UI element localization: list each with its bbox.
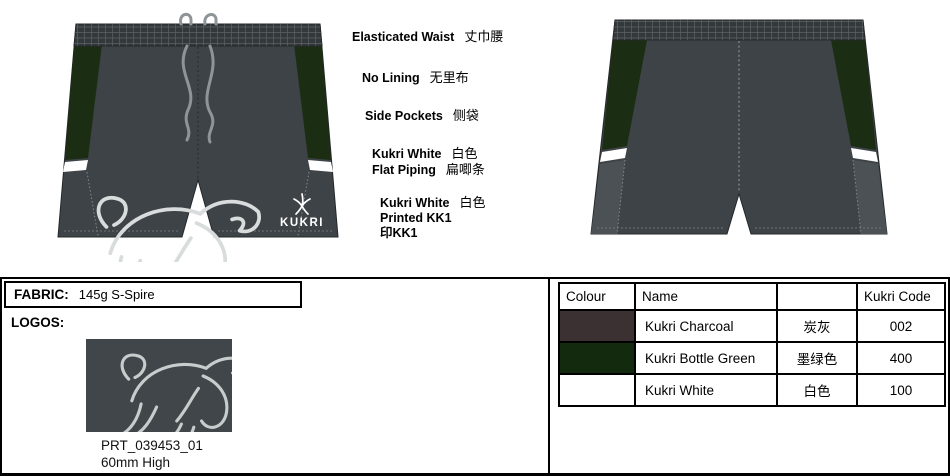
annotation-flat-piping: Kukri White白色 Flat Piping扁唧条 [372,146,485,178]
header-colour: Colour [559,283,635,310]
annotation-zh: 无里布 [430,70,469,85]
annotation-en: Kukri White [372,147,441,161]
colour-name-zh: 墨绿色 [777,342,857,374]
colour-table: Colour Name Kukri Code Kukri Charcoal 炭灰… [558,282,946,407]
section-divider [548,279,550,473]
colour-name: Kukri Charcoal [635,310,777,342]
colour-code: 002 [857,310,945,342]
annotation-en: Flat Piping [372,163,436,177]
logo-preview [86,339,232,432]
spec-sheet: KUKRI Elasticated Waist丈巾腰 No Lining无里布 … [0,0,950,476]
front-waistband-stitch [74,24,322,46]
back-shorts-drawing [589,10,889,260]
annotation-zh: 白色 [451,146,477,161]
fabric-label: FABRIC: [14,287,69,302]
annotation-printed-kk1: Kukri White白色 Printed KK1 印KK1 [380,195,485,241]
table-row: Kukri White 白色 100 [559,374,945,406]
swatch-charcoal [559,310,635,342]
swatch-bottle-green [559,342,635,374]
annotation-en: Side Pockets [365,109,443,123]
annotation-elasticated-waist: Elasticated Waist丈巾腰 [352,26,503,45]
colour-name-zh: 白色 [777,374,857,406]
annotation-zh: 丈巾腰 [464,29,503,44]
annotation-en: No Lining [362,71,420,85]
annotation-zh: 白色 [459,195,485,210]
annotation-no-lining: No Lining无里布 [362,67,469,86]
logos-label: LOGOS: [11,315,64,330]
colour-name-zh: 炭灰 [777,310,857,342]
annotation-side-pockets: Side Pockets侧袋 [365,105,479,124]
swatch-white [559,374,635,406]
annotation-en: Kukri White [380,196,449,210]
table-row: Kukri Charcoal 炭灰 002 [559,310,945,342]
print-code: PRT_039453_01 [101,437,203,454]
table-row: Kukri Bottle Green 墨绿色 400 [559,342,945,374]
back-waistband-stitch [613,20,865,40]
annotation-zh: 扁唧条 [446,162,485,177]
annotation-en: Printed KK1 [380,211,452,225]
header-chinese [777,283,857,310]
colour-code: 400 [857,342,945,374]
kukri-wordmark: KUKRI [280,217,324,229]
front-shorts-drawing: KUKRI [56,10,340,262]
annotation-zh: 印KK1 [380,226,418,240]
fabric-box: FABRIC: 145g S-Spire [4,281,302,308]
colour-name: Kukri White [635,374,777,406]
bottom-panel: FABRIC: 145g S-Spire LOGOS: PRT_039453_0… [0,277,950,476]
fabric-value: 145g S-Spire [79,287,155,302]
annotation-zh: 侧袋 [453,108,479,123]
bull-logo-large [86,339,232,432]
colour-table-header: Colour Name Kukri Code [559,283,945,310]
logo-print-info: PRT_039453_01 60mm High [101,437,203,471]
header-kukri-code: Kukri Code [857,283,945,310]
annotation-en: Elasticated Waist [352,30,454,44]
print-height: 60mm High [101,454,203,471]
header-name: Name [635,283,777,310]
colour-code: 100 [857,374,945,406]
colour-name: Kukri Bottle Green [635,342,777,374]
